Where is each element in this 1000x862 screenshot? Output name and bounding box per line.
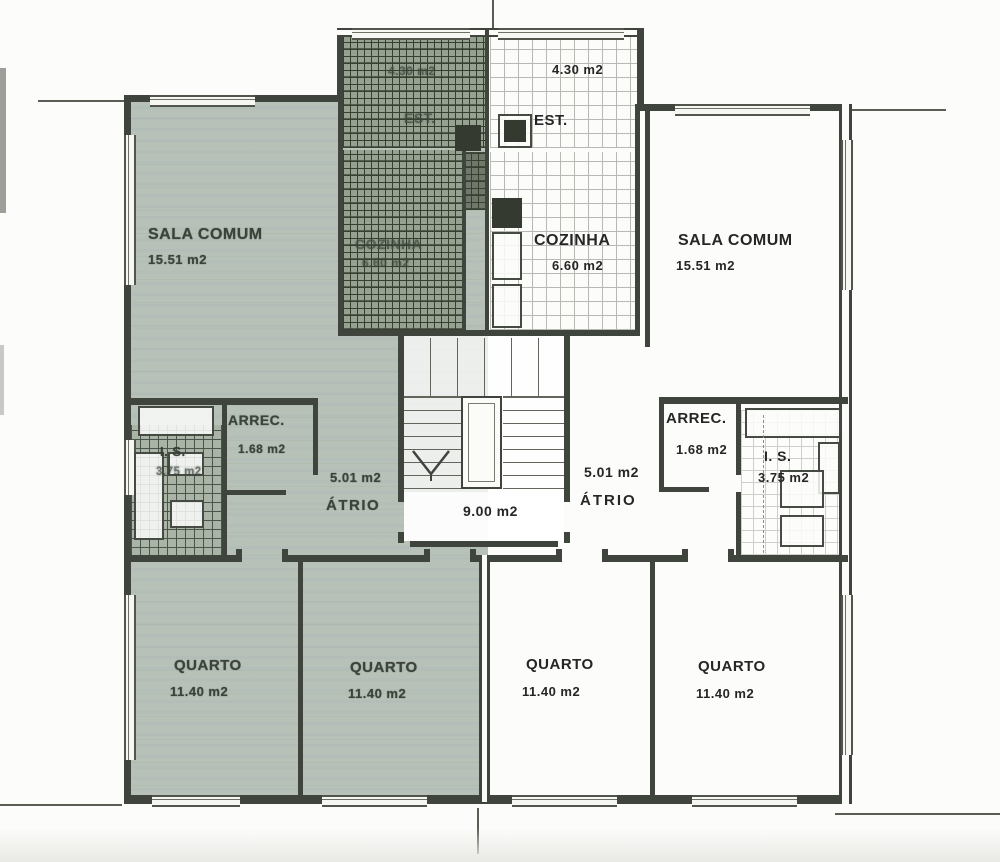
window-sala-right (841, 140, 853, 290)
est-right-fixture (504, 120, 526, 142)
est-left-fixture (455, 125, 481, 151)
wall-arrec-right-a (659, 403, 664, 492)
wall-protrusion-right (637, 28, 644, 111)
window-top-right (675, 104, 810, 116)
toilet-left (170, 500, 204, 528)
label-est-left-area: 4.30 m2 (388, 64, 436, 78)
door-jamb (236, 549, 242, 562)
label-quarto-a-name: QUARTO (174, 657, 242, 674)
wall-corridor-6 (728, 555, 848, 562)
wall-sala-left (338, 95, 343, 335)
stair-newel-inner (468, 403, 495, 482)
closet-right (745, 408, 841, 438)
label-est-left-name: EST. (404, 110, 436, 126)
label-stairwell-area: 9.00 m2 (463, 503, 518, 519)
ref-line-top-tick (492, 0, 494, 28)
label-atrio-right-area: 5.01 m2 (584, 464, 639, 480)
ref-line-right (851, 109, 946, 111)
wall-left-zone-top (124, 398, 318, 405)
wall-kitchen-right-bottom (563, 330, 640, 336)
label-cozinha-left-area: 6.60 m2 (362, 256, 410, 270)
door-jamb (470, 549, 476, 562)
wall-arrec-left-a (222, 398, 227, 495)
floor-plan-page: SALA COMUM 15.51 m2 4.30 m2 EST. COZINHA… (0, 0, 1000, 862)
label-cozinha-right-name: COZINHA (534, 232, 610, 250)
label-sala-right-area: 15.51 m2 (676, 258, 735, 273)
stair-newel (461, 396, 502, 489)
label-atrio-left-name: ÁTRIO (326, 497, 380, 514)
label-quarto-a-area: 11.40 m2 (170, 684, 228, 699)
label-sala-right-name: SALA COMUM (678, 232, 793, 250)
wall-corridor-1 (124, 555, 242, 562)
wall-is-right-side (736, 492, 741, 561)
wall-stair-right (564, 336, 570, 502)
label-arrec-left-name: ARREC. (228, 412, 285, 428)
label-quarto-c-area: 11.40 m2 (522, 684, 580, 699)
bidet-right (780, 515, 824, 547)
wall-corridor-5 (602, 555, 688, 562)
label-atrio-right-name: ÁTRIO (580, 492, 637, 509)
kitchen-right-counter (492, 232, 522, 280)
wall-stair-left (398, 336, 404, 502)
label-cozinha-left-name: COZINHA (355, 236, 422, 252)
label-quarto-b-name: QUARTO (350, 659, 418, 676)
label-atrio-left-area: 5.01 m2 (330, 470, 381, 485)
wall-stair-top (398, 330, 570, 336)
label-is-left-name: I. S. (160, 444, 186, 459)
label-arrec-right-name: ARREC. (666, 410, 727, 427)
label-quarto-d-area: 11.40 m2 (696, 686, 754, 701)
label-is-left-area: 3.75 m2 (156, 466, 202, 478)
window-sala-left (124, 135, 136, 285)
wall-is-left-side (222, 495, 227, 561)
window-bottom-quarto-d (692, 795, 797, 807)
wall-sala-right-bottom (659, 397, 848, 404)
wall-stair-bottom (410, 541, 558, 547)
wall-party-top (485, 30, 489, 336)
window-quarto-d (841, 595, 853, 755)
wall-quarto-divider-left (298, 562, 303, 795)
window-top-left (150, 95, 255, 107)
wall-duct-divider (462, 150, 466, 332)
label-arrec-left-area: 1.68 m2 (238, 442, 286, 456)
wall-protrusion-left (337, 28, 343, 102)
ref-line-bottom-left (0, 804, 122, 806)
wall-party-bottom (479, 555, 490, 802)
stairs-upper-flight (403, 338, 565, 396)
wall-stair-left-jamb (398, 532, 404, 543)
wall-arrec-left-bottom (222, 490, 286, 495)
wall-quarto-divider-right (650, 562, 655, 795)
window-bottom-quarto-c (512, 795, 617, 807)
ref-line-bottom-right (835, 813, 1000, 815)
label-est-right-name: EST. (534, 112, 568, 129)
door-jamb (424, 549, 430, 562)
door-jamb (282, 549, 288, 562)
window-quarto-a (124, 595, 136, 760)
wall-sala-right-side (645, 104, 650, 347)
door-jamb (682, 549, 688, 562)
texture-duct-shaft (464, 152, 486, 210)
stair-down-arrow-icon (408, 446, 454, 482)
kitchen-right-sink (492, 284, 522, 328)
label-quarto-c-name: QUARTO (526, 656, 594, 673)
window-bottom-quarto-b (322, 795, 427, 807)
label-is-right-name: I. S. (764, 448, 791, 464)
wall-arrec-right-bottom (659, 487, 709, 492)
ref-line-left (38, 100, 128, 102)
closet-left (138, 406, 214, 436)
wall-arrec-right-b (736, 403, 741, 475)
door-jamb (556, 549, 562, 562)
door-jamb (728, 549, 734, 562)
wall-corridor-4 (490, 555, 562, 562)
wall-kitchen-right-side (635, 104, 640, 336)
label-quarto-b-area: 11.40 m2 (348, 686, 406, 701)
window-est-left (352, 28, 470, 40)
window-est-right (498, 28, 624, 40)
stairs-right-flight (503, 396, 564, 491)
scan-edge-artifact (0, 68, 6, 213)
label-is-right-area: 3.75 m2 (758, 470, 809, 485)
label-est-right-area: 4.30 m2 (552, 62, 603, 77)
door-jamb (602, 549, 608, 562)
scan-edge-artifact (0, 345, 4, 415)
wall-stair-right-jamb (564, 532, 570, 543)
label-cozinha-right-area: 6.60 m2 (552, 258, 603, 273)
wall-arrec-left-b (313, 398, 318, 475)
kitchen-right-stove (492, 198, 522, 228)
label-quarto-d-name: QUARTO (698, 658, 766, 675)
window-bottom-quarto-a (152, 795, 240, 807)
label-sala-left-name: SALA COMUM (148, 226, 263, 244)
wall-corridor-2 (282, 555, 430, 562)
label-arrec-right-area: 1.68 m2 (676, 442, 727, 457)
label-sala-left-area: 15.51 m2 (148, 252, 207, 267)
scan-bottom-band (0, 828, 1000, 862)
